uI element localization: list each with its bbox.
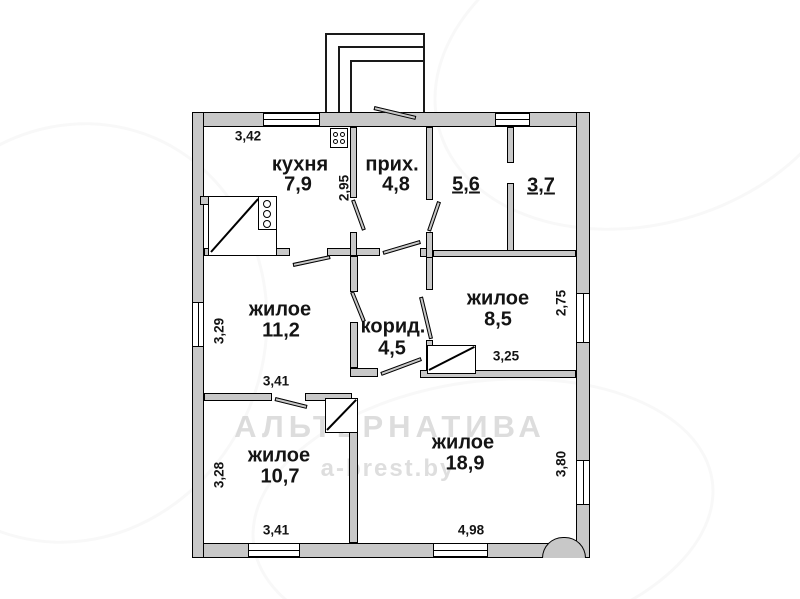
wall-corridor-left-bottom	[350, 322, 358, 368]
wall-room11-room107-left	[204, 393, 272, 401]
stove-burners-icon	[330, 128, 348, 148]
stove-burner	[340, 139, 345, 144]
room-corridor-area: 4,5	[378, 338, 406, 361]
room-107-label: жилое	[248, 445, 310, 468]
room-hall-area: 4,8	[382, 174, 410, 197]
dim-room189-right: 3,80	[554, 451, 569, 477]
room-corridor-label: корид.	[361, 316, 426, 339]
door-leaf-symbol	[382, 240, 421, 255]
room-kitchen-area: 7,9	[284, 174, 312, 197]
dim-room11-left: 3,29	[212, 318, 227, 344]
room-56-area: 5,6	[452, 174, 480, 197]
stove-burner	[333, 139, 338, 144]
window-symbol	[248, 543, 300, 557]
wall-hall-room56-top	[426, 127, 433, 200]
room-37-area: 3,7	[527, 175, 555, 198]
dim-kitchen-top: 3,42	[235, 129, 261, 144]
room-11-label: жилое	[249, 299, 311, 322]
watermark-site: a-brest.by	[321, 455, 456, 483]
dim-room11-bottom: 3,41	[263, 374, 289, 389]
window-symbol	[433, 543, 488, 557]
door-leaf-symbol	[275, 397, 308, 409]
wall-hall-room56-bottom	[426, 232, 433, 258]
room-85-label: жилое	[467, 288, 529, 311]
dim-room107-bottom: 3,41	[263, 523, 289, 538]
window-symbol	[495, 113, 530, 126]
wall-corridor-right-top	[426, 257, 433, 290]
entrance-porch-steps	[350, 60, 425, 113]
dim-kitchen-hall-wall: 2,95	[337, 175, 352, 201]
window-symbol	[576, 460, 590, 505]
door-leaf-symbol	[351, 199, 366, 230]
sink-burner	[263, 200, 271, 208]
sink-burner	[263, 220, 271, 228]
wall-corridor-left-top	[350, 256, 358, 292]
sink-burner	[263, 210, 271, 218]
room-189-area: 18,9	[446, 453, 485, 476]
wall-room56-room37-bottom	[507, 183, 514, 251]
wall-kitchen-hall-bottom	[350, 232, 357, 256]
background-swirl	[398, 0, 800, 276]
door-leaf-symbol	[427, 201, 441, 232]
room-85-area: 8,5	[484, 309, 512, 332]
room-11-area: 11,2	[262, 320, 300, 343]
wall-room107-room189	[349, 432, 358, 543]
window-symbol	[263, 113, 320, 126]
watermark-agency: АЛЬТЕРНАТИВА	[234, 409, 546, 445]
room-189-label: жилое	[432, 432, 494, 455]
window-symbol	[576, 293, 590, 343]
dim-room107-left: 3,28	[212, 462, 227, 488]
wall-corridor-bottom	[350, 368, 378, 377]
door-leaf-symbol	[293, 255, 331, 267]
dim-room85-right: 2,75	[554, 290, 569, 316]
wall-room56-room37-top	[507, 127, 514, 163]
floor-plan: АЛЬТЕРНАТИВА a-brest.by	[0, 0, 800, 599]
room-107-area: 10,7	[261, 466, 300, 489]
wall-room85-top	[433, 250, 576, 257]
stove-burner	[333, 132, 338, 137]
dim-room189-bottom: 4,98	[458, 523, 484, 538]
window-symbol	[192, 302, 204, 347]
stove-burner	[340, 132, 345, 137]
dim-room85-bottom: 3,25	[493, 349, 519, 364]
